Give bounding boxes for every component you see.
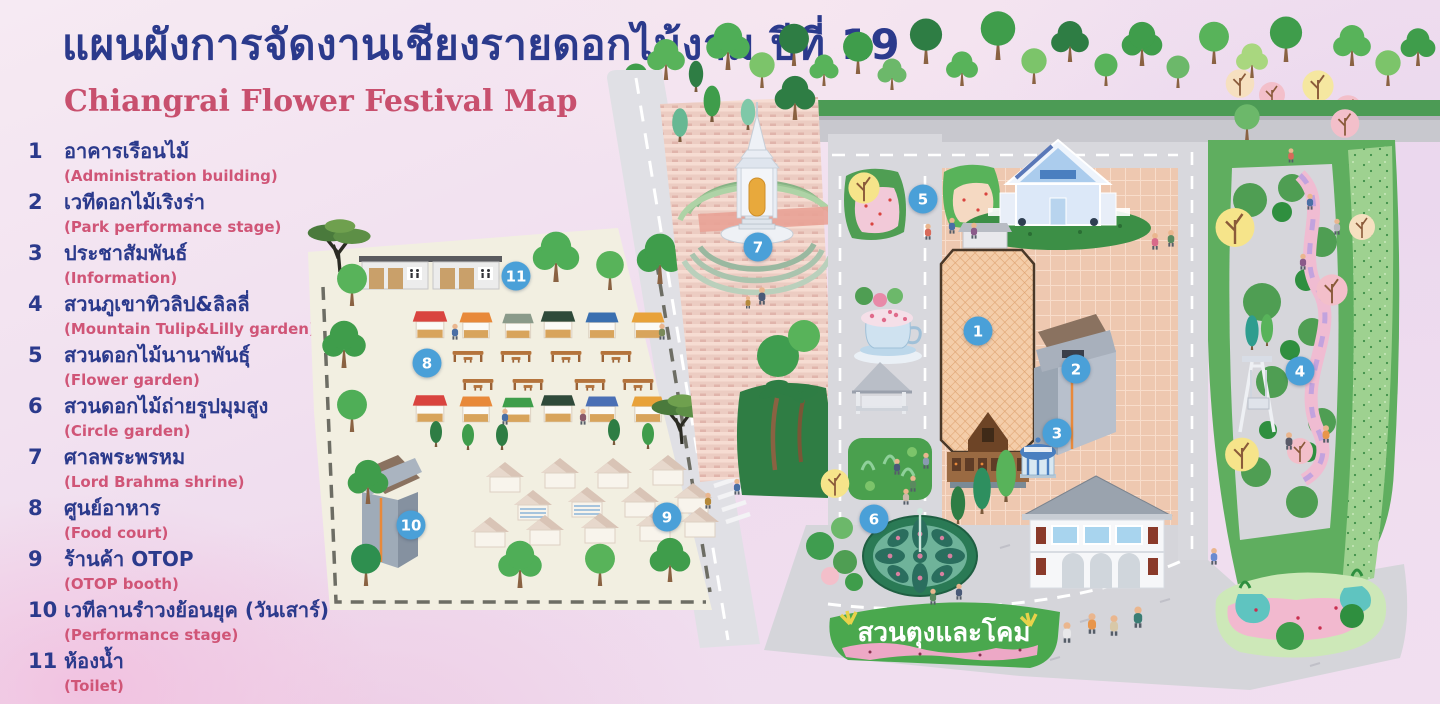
hedge-blocks (848, 438, 932, 500)
map-marker-1[interactable]: 1 (964, 317, 993, 346)
map-marker-10[interactable]: 10 (397, 511, 426, 540)
map-marker-8[interactable]: 8 (413, 349, 442, 378)
map-marker-3[interactable]: 3 (1043, 419, 1072, 448)
map-marker-11[interactable]: 11 (502, 262, 531, 291)
flower-bed (1216, 570, 1387, 658)
map-marker-9[interactable]: 9 (653, 503, 682, 532)
map-marker-2[interactable]: 2 (1062, 355, 1091, 384)
administration-building (941, 223, 1034, 488)
festival-map-page: แผนผังการจัดงานเชียงรายดอกไม้งาม ปีที่ 1… (0, 0, 1440, 704)
map-marker-6[interactable]: 6 (860, 505, 889, 534)
flower-garden-bed (844, 169, 906, 240)
map-illustration: สวนตุงและโคม (0, 0, 1440, 704)
map-marker-4[interactable]: 4 (1286, 357, 1315, 386)
garden-label: สวนตุงและโคม (858, 616, 1031, 649)
map-marker-7[interactable]: 7 (744, 233, 773, 262)
map-marker-5[interactable]: 5 (909, 185, 938, 214)
